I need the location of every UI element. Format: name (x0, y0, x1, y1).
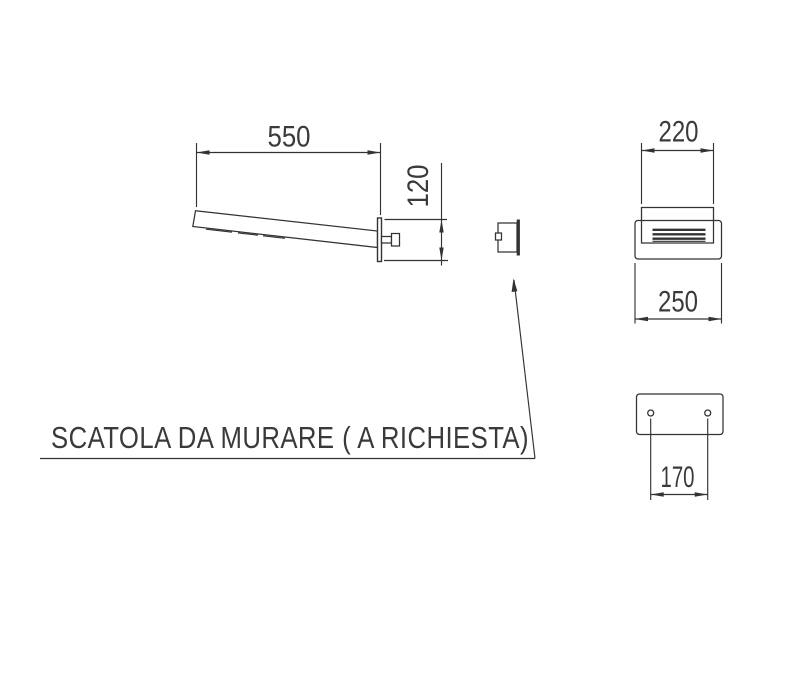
dimension-label-backplate-height: 120 (402, 165, 435, 208)
arrowhead-left (197, 150, 210, 154)
side-view: 550 120 (193, 121, 448, 266)
dimension-250: 250 (635, 263, 722, 324)
technical-drawing: 550 120 SCATOLA DA MURARE ( A RICHIESTA) (0, 0, 800, 688)
dimension-120: 120 (384, 163, 448, 266)
arrowhead-down (439, 248, 443, 261)
dimension-label-arm-length: 550 (268, 121, 311, 154)
knob-stem (382, 237, 392, 244)
dimension-label-head-width: 220 (659, 116, 699, 149)
arrowhead-up (439, 220, 443, 233)
dimension-label-hole-spacing: 170 (661, 461, 695, 494)
leader-note: SCATOLA DA MURARE ( A RICHIESTA) (40, 279, 535, 459)
lamp-arm-outline (193, 211, 378, 248)
bottom-view: 170 (637, 394, 724, 500)
front-view: 220 250 (635, 116, 722, 324)
knob-cap (392, 234, 400, 247)
arrowhead-left (642, 148, 655, 152)
dimension-550: 550 (197, 121, 381, 216)
wall-box-symbol (496, 220, 519, 256)
caption-text: SCATOLA DA MURARE ( A RICHIESTA) (51, 420, 529, 455)
arrowhead-right (709, 317, 722, 321)
mounting-hole-left (648, 410, 654, 416)
dimension-220: 220 (642, 116, 714, 205)
arrowhead-left (635, 317, 648, 321)
arrowhead-right (368, 150, 381, 154)
dimension-label-body-width: 250 (658, 286, 698, 319)
mounting-hole-right (705, 410, 711, 416)
wall-box-notch (496, 233, 502, 240)
technical-drawing-page: 550 120 SCATOLA DA MURARE ( A RICHIESTA) (0, 0, 800, 688)
arrowhead-right (701, 148, 714, 152)
arrowhead-right (695, 492, 708, 496)
